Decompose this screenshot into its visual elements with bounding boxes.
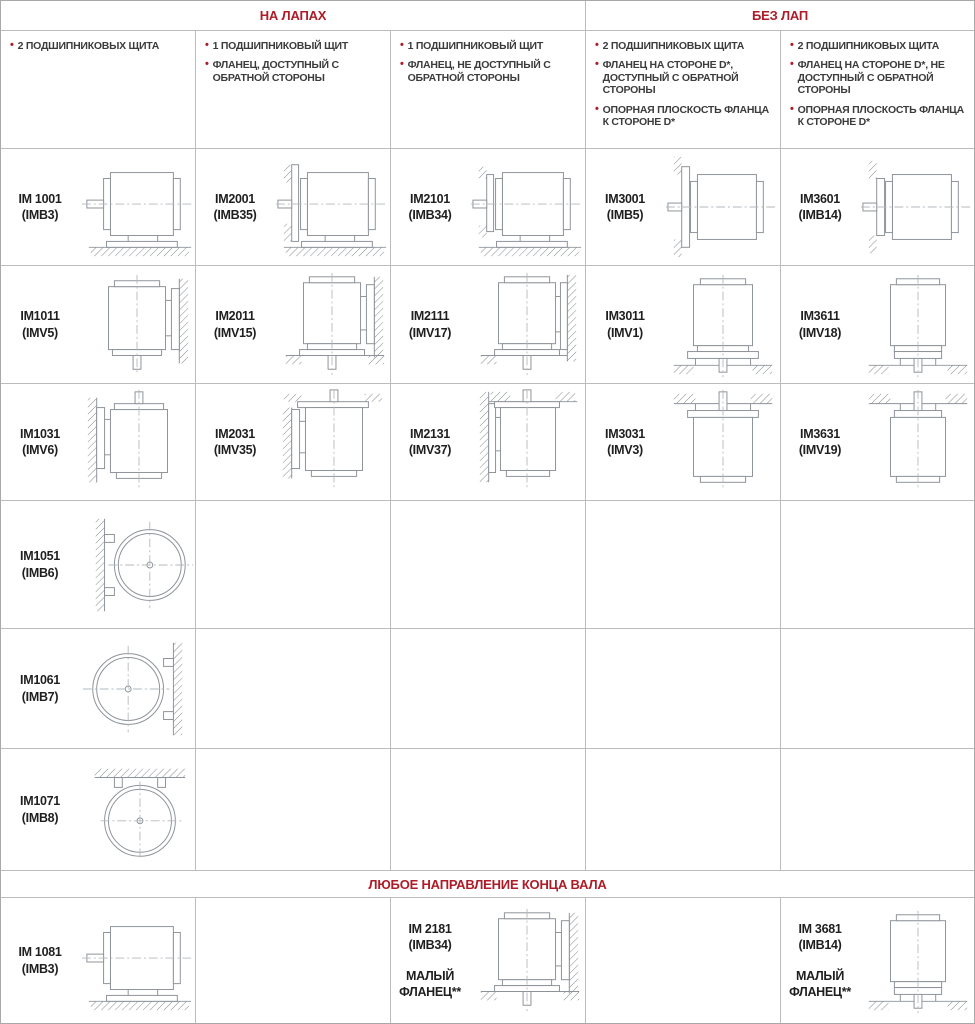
diagram-area <box>79 906 196 1016</box>
im-code: IM 1001 <box>1 191 79 207</box>
imb-code: (IMV35) <box>196 442 274 458</box>
motor-diagram-frontWallLeft <box>79 510 196 620</box>
motor-diagram-sideFeetGround <box>79 152 196 262</box>
header-on-feet-label: НА ЛАПАХ <box>260 8 327 23</box>
empty-cell <box>781 629 974 749</box>
empty-cell <box>196 629 391 749</box>
empty-cell <box>196 749 391 871</box>
mounting-cell-IM3601: IM3601(IMB14) <box>781 149 974 266</box>
mounting-cell-IM1001: IM 1001(IMB3) <box>1 149 196 266</box>
column-description-cell: •1 ПОДШИПНИКОВЫЙ ЩИТ•ФЛАНЕЦ, ДОСТУПНЫЙ С… <box>196 31 391 149</box>
diagram-area <box>469 387 586 497</box>
mounting-cell-IM1081: IM 1081(IMB3) <box>1 898 196 1023</box>
empty-cell <box>586 749 781 871</box>
feature-bullet-text: ОПОРНАЯ ПЛОСКОСТЬ ФЛАНЦА К СТОРОНЕ D* <box>798 104 968 129</box>
im-label: IM2111(IMV17) <box>391 308 469 341</box>
empty-cell <box>586 501 781 629</box>
diagram-area <box>664 152 781 262</box>
im-code: IM3611 <box>781 308 859 324</box>
imb-code: (IMB3) <box>1 207 79 223</box>
im-label: IM1061(IMB7) <box>1 672 79 705</box>
mounting-cell-IM1071: IM1071(IMB8) <box>1 749 196 871</box>
feature-bullet: •1 ПОДШИПНИКОВЫЙ ЩИТ <box>400 40 579 52</box>
motor-diagram-vertUpSmallFlangeCeiling <box>859 387 974 497</box>
imb-code: (IMB35) <box>196 207 274 223</box>
im-label: IM3631(IMV19) <box>781 426 859 459</box>
bullet-icon: • <box>205 59 209 71</box>
empty-cell <box>781 749 974 871</box>
im-code: IM1051 <box>1 548 79 564</box>
im-label: IM3031(IMV3) <box>586 426 664 459</box>
bullet-icon: • <box>790 104 794 116</box>
small-flange-note: МАЛЫЙ ФЛАНЕЦ** <box>781 968 859 1001</box>
feature-bullet: •2 ПОДШИПНИКОВЫХ ЩИТА <box>790 40 968 52</box>
feature-bullet: •ОПОРНАЯ ПЛОСКОСТЬ ФЛАНЦА К СТОРОНЕ D* <box>790 104 968 129</box>
mounting-cell-IM3681: IM 3681(IMB14)МАЛЫЙ ФЛАНЕЦ** <box>781 898 974 1023</box>
column-description-cell: •1 ПОДШИПНИКОВЫЙ ЩИТ•ФЛАНЕЦ, НЕ ДОСТУПНЫ… <box>391 31 586 149</box>
imb-code: (IMV1) <box>586 325 664 341</box>
diagram-area <box>859 906 974 1016</box>
im-label: IM2131(IMV37) <box>391 426 469 459</box>
feature-bullet-text: ОПОРНАЯ ПЛОСКОСТЬ ФЛАНЦА К СТОРОНЕ D* <box>603 104 774 129</box>
imb-code: (IMB3) <box>1 961 79 977</box>
im-code: IM2111 <box>391 308 469 324</box>
bullet-icon: • <box>10 40 14 52</box>
bullet-icon: • <box>595 59 599 71</box>
motor-diagram-vertDownWallFlangeFloor <box>469 270 586 380</box>
im-label: IM3601(IMB14) <box>781 191 859 224</box>
feature-bullet: •ФЛАНЕЦ, ДОСТУПНЫЙ С ОБРАТНОЙ СТОРОНЫ <box>205 59 384 84</box>
im-code: IM 2181 <box>391 921 469 937</box>
im-code: IM 3681 <box>781 921 859 937</box>
bullet-icon: • <box>205 40 209 52</box>
motor-diagram-sideFeetFlangeWall <box>274 152 391 262</box>
empty-cell <box>391 629 586 749</box>
motor-diagram-vertUpFeetWallFlangeCeiling <box>274 387 391 497</box>
feature-bullet: •2 ПОДШИПНИКОВЫХ ЩИТА <box>595 40 774 52</box>
im-code: IM2011 <box>196 308 274 324</box>
column-description-cell: •2 ПОДШИПНИКОВЫХ ЩИТА•ФЛАНЕЦ НА СТОРОНЕ … <box>586 31 781 149</box>
imb-code: (IMB14) <box>781 937 859 953</box>
im-code: IM2131 <box>391 426 469 442</box>
im-code: IM3001 <box>586 191 664 207</box>
im-label: IM2001(IMB35) <box>196 191 274 224</box>
mounting-cell-IM3611: IM3611(IMV18) <box>781 266 974 384</box>
motor-diagram-vertDownSmallFlangeFloor <box>859 906 974 1016</box>
im-code: IM 1081 <box>1 944 79 960</box>
im-code: IM3011 <box>586 308 664 324</box>
im-label: IM1031(IMV6) <box>1 426 79 459</box>
motor-diagram-sideSmallFlangeWall <box>859 152 974 262</box>
feature-bullet-text: 2 ПОДШИПНИКОВЫХ ЩИТА <box>18 40 160 52</box>
mounting-cell-IM1061: IM1061(IMB7) <box>1 629 196 749</box>
empty-cell <box>391 501 586 629</box>
mounting-cell-IM2131: IM2131(IMV37) <box>391 384 586 501</box>
header-any-shaft-direction-label: ЛЮБОЕ НАПРАВЛЕНИЕ КОНЦА ВАЛА <box>368 877 606 892</box>
imb-code: (IMV6) <box>1 442 79 458</box>
diagram-area <box>664 387 781 497</box>
bullet-icon: • <box>790 40 794 52</box>
im-code: IM1011 <box>1 308 79 324</box>
motor-diagram-vertDownFeetWallFlangeFloor <box>274 270 391 380</box>
mounting-cell-IM2181: IM 2181(IMB34)МАЛЫЙ ФЛАНЕЦ** <box>391 898 586 1023</box>
diagram-area <box>79 634 196 744</box>
header-without-feet-label: БЕЗ ЛАП <box>752 8 808 23</box>
im-label: IM 2181(IMB34)МАЛЫЙ ФЛАНЕЦ** <box>391 921 469 1000</box>
imb-code: (IMB8) <box>1 810 79 826</box>
motor-diagram-frontCeiling <box>79 755 196 865</box>
im-label: IM2011(IMV15) <box>196 308 274 341</box>
bullet-icon: • <box>400 59 404 71</box>
motor-diagram-vertDownFeetWallFlangeFloor <box>469 906 586 1016</box>
im-label: IM 3681(IMB14)МАЛЫЙ ФЛАНЕЦ** <box>781 921 859 1000</box>
motor-diagram-vertDownFlangeFloor <box>664 270 781 380</box>
header-any-shaft-direction: ЛЮБОЕ НАПРАВЛЕНИЕ КОНЦА ВАЛА <box>1 871 974 898</box>
feature-bullet: •2 ПОДШИПНИКОВЫХ ЩИТА <box>10 40 189 52</box>
empty-cell <box>196 898 391 1023</box>
mounting-cell-IM3011: IM3011(IMV1) <box>586 266 781 384</box>
imb-code: (IMV15) <box>196 325 274 341</box>
im-label: IM3011(IMV1) <box>586 308 664 341</box>
diagram-area <box>274 152 391 262</box>
im-code: IM1031 <box>1 426 79 442</box>
imb-code: (IMB14) <box>781 207 859 223</box>
feature-bullet: •ФЛАНЕЦ НА СТОРОНЕ D*, НЕ ДОСТУПНЫЙ С ОБ… <box>790 59 968 96</box>
imb-code: (IMB6) <box>1 565 79 581</box>
im-code: IM2101 <box>391 191 469 207</box>
mounting-cell-IM1011: IM1011(IMV5) <box>1 266 196 384</box>
diagram-area <box>79 152 196 262</box>
im-code: IM1061 <box>1 672 79 688</box>
feature-bullet: •ОПОРНАЯ ПЛОСКОСТЬ ФЛАНЦА К СТОРОНЕ D* <box>595 104 774 129</box>
feature-bullet-text: ФЛАНЕЦ НА СТОРОНЕ D*, НЕ ДОСТУПНЫЙ С ОБР… <box>798 59 968 96</box>
im-mounting-table: НА ЛАПАХ БЕЗ ЛАП •2 ПОДШИПНИКОВЫХ ЩИТА•1… <box>0 0 975 1024</box>
empty-cell <box>391 749 586 871</box>
motor-diagram-vertUpFeetWall <box>79 387 196 497</box>
feature-bullet-text: 2 ПОДШИПНИКОВЫХ ЩИТА <box>798 40 940 52</box>
mounting-cell-IM1031: IM1031(IMV6) <box>1 384 196 501</box>
empty-cell <box>586 898 781 1023</box>
diagram-area <box>79 387 196 497</box>
im-code: IM3031 <box>586 426 664 442</box>
im-code: IM2001 <box>196 191 274 207</box>
im-label: IM3611(IMV18) <box>781 308 859 341</box>
feature-bullet-text: 2 ПОДШИПНИКОВЫХ ЩИТА <box>603 40 745 52</box>
diagram-area <box>859 270 974 380</box>
feature-bullet-text: ФЛАНЕЦ, ДОСТУПНЫЙ С ОБРАТНОЙ СТОРОНЫ <box>213 59 384 84</box>
motor-diagram-sideFeetSmallFlange <box>469 152 586 262</box>
mounting-cell-IM2011: IM2011(IMV15) <box>196 266 391 384</box>
imb-code: (IMV18) <box>781 325 859 341</box>
diagram-area <box>79 510 196 620</box>
bullet-icon: • <box>595 40 599 52</box>
diagram-area <box>469 906 586 1016</box>
column-description-cell: •2 ПОДШИПНИКОВЫХ ЩИТА <box>1 31 196 149</box>
mounting-cell-IM2111: IM2111(IMV17) <box>391 266 586 384</box>
feature-bullet-text: ФЛАНЕЦ НА СТОРОНЕ D*, ДОСТУПНЫЙ С ОБРАТН… <box>603 59 774 96</box>
imb-code: (IMV17) <box>391 325 469 341</box>
im-label: IM1011(IMV5) <box>1 308 79 341</box>
imb-code: (IMV37) <box>391 442 469 458</box>
mounting-cell-IM2031: IM2031(IMV35) <box>196 384 391 501</box>
im-label: IM 1081(IMB3) <box>1 944 79 977</box>
mounting-cell-IM3001: IM3001(IMB5) <box>586 149 781 266</box>
motor-diagram-vertUpWallFlangeCeiling <box>469 387 586 497</box>
diagram-area <box>469 152 586 262</box>
diagram-area <box>859 152 974 262</box>
im-code: IM3631 <box>781 426 859 442</box>
im-label: IM1071(IMB8) <box>1 793 79 826</box>
motor-diagram-sideFlangeWall <box>664 152 781 262</box>
header-without-feet: БЕЗ ЛАП <box>586 1 974 31</box>
motor-diagram-vertUpFlangeCeiling <box>664 387 781 497</box>
empty-cell <box>781 501 974 629</box>
diagram-area <box>79 270 196 380</box>
mounting-cell-IM1051: IM1051(IMB6) <box>1 501 196 629</box>
motor-diagram-frontWallRight <box>79 634 196 744</box>
imb-code: (IMB5) <box>586 207 664 223</box>
bullet-icon: • <box>595 104 599 116</box>
mounting-cell-IM3631: IM3631(IMV19) <box>781 384 974 501</box>
diagram-area <box>469 270 586 380</box>
diagram-area <box>664 270 781 380</box>
diagram-area <box>274 387 391 497</box>
feature-bullet: •1 ПОДШИПНИКОВЫЙ ЩИТ <box>205 40 384 52</box>
header-on-feet: НА ЛАПАХ <box>1 1 586 31</box>
feature-bullet: •ФЛАНЕЦ, НЕ ДОСТУПНЫЙ С ОБРАТНОЙ СТОРОНЫ <box>400 59 579 84</box>
im-label: IM 1001(IMB3) <box>1 191 79 224</box>
imb-code: (IMV19) <box>781 442 859 458</box>
small-flange-note: МАЛЫЙ ФЛАНЕЦ** <box>391 968 469 1001</box>
imb-code: (IMB7) <box>1 689 79 705</box>
motor-diagram-vertDownFeetWall <box>79 270 196 380</box>
motor-diagram-sideFeetGround <box>79 906 196 1016</box>
motor-diagram-vertDownSmallFlangeFloor <box>859 270 974 380</box>
bullet-icon: • <box>400 40 404 52</box>
im-label: IM2101(IMB34) <box>391 191 469 224</box>
im-label: IM1051(IMB6) <box>1 548 79 581</box>
imb-code: (IMB34) <box>391 937 469 953</box>
im-code: IM3601 <box>781 191 859 207</box>
im-label: IM2031(IMV35) <box>196 426 274 459</box>
imb-code: (IMV5) <box>1 325 79 341</box>
im-code: IM1071 <box>1 793 79 809</box>
feature-bullet-text: ФЛАНЕЦ, НЕ ДОСТУПНЫЙ С ОБРАТНОЙ СТОРОНЫ <box>408 59 579 84</box>
im-code: IM2031 <box>196 426 274 442</box>
imb-code: (IMV3) <box>586 442 664 458</box>
feature-bullet-text: 1 ПОДШИПНИКОВЫЙ ЩИТ <box>408 40 543 52</box>
empty-cell <box>196 501 391 629</box>
imb-code: (IMB34) <box>391 207 469 223</box>
mounting-cell-IM2001: IM2001(IMB35) <box>196 149 391 266</box>
empty-cell <box>586 629 781 749</box>
mounting-cell-IM3031: IM3031(IMV3) <box>586 384 781 501</box>
column-description-cell: •2 ПОДШИПНИКОВЫХ ЩИТА•ФЛАНЕЦ НА СТОРОНЕ … <box>781 31 974 149</box>
mounting-cell-IM2101: IM2101(IMB34) <box>391 149 586 266</box>
feature-bullet: •ФЛАНЕЦ НА СТОРОНЕ D*, ДОСТУПНЫЙ С ОБРАТ… <box>595 59 774 96</box>
diagram-area <box>79 755 196 865</box>
diagram-area <box>859 387 974 497</box>
im-label: IM3001(IMB5) <box>586 191 664 224</box>
bullet-icon: • <box>790 59 794 71</box>
diagram-area <box>274 270 391 380</box>
feature-bullet-text: 1 ПОДШИПНИКОВЫЙ ЩИТ <box>213 40 348 52</box>
